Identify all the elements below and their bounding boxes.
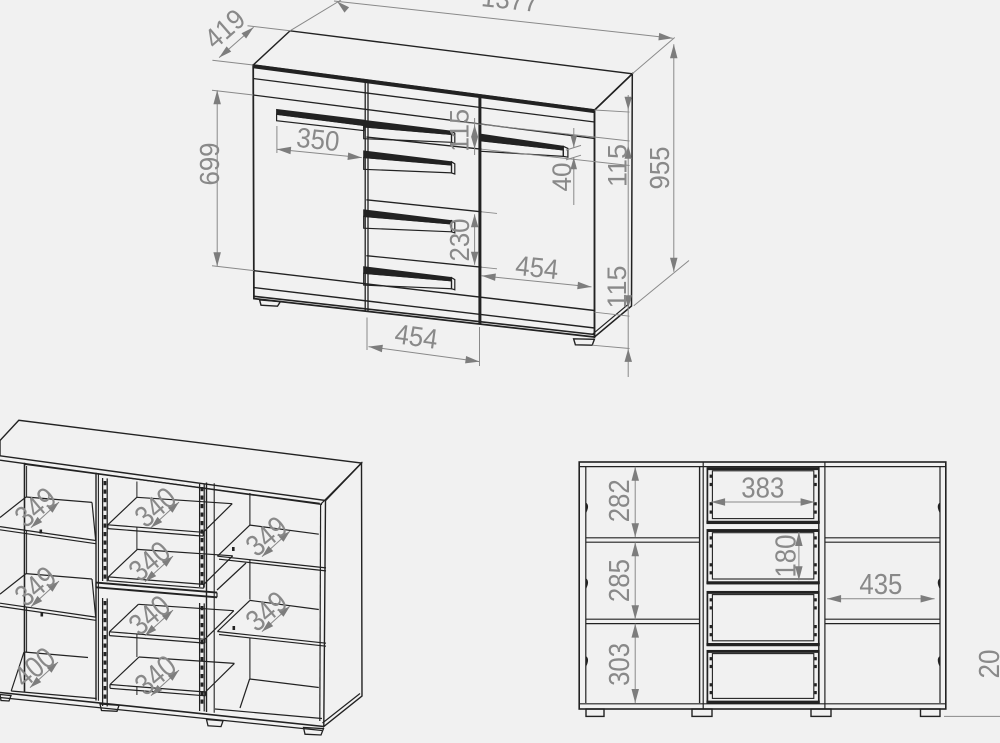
svg-text:115: 115 — [602, 266, 632, 309]
svg-text:282: 282 — [604, 479, 636, 522]
svg-text:20: 20 — [974, 650, 1000, 679]
svg-text:230: 230 — [444, 219, 475, 262]
svg-text:303: 303 — [604, 643, 636, 686]
svg-text:454: 454 — [514, 250, 560, 285]
svg-text:454: 454 — [393, 318, 440, 355]
svg-text:350: 350 — [295, 122, 341, 157]
svg-text:699: 699 — [194, 143, 225, 186]
svg-text:435: 435 — [859, 569, 902, 601]
svg-text:285: 285 — [604, 559, 636, 602]
svg-text:115: 115 — [603, 144, 633, 187]
svg-text:383: 383 — [741, 473, 784, 505]
svg-text:115: 115 — [445, 109, 475, 152]
svg-text:40: 40 — [547, 163, 577, 192]
svg-text:955: 955 — [644, 147, 675, 190]
svg-text:180: 180 — [771, 535, 803, 578]
